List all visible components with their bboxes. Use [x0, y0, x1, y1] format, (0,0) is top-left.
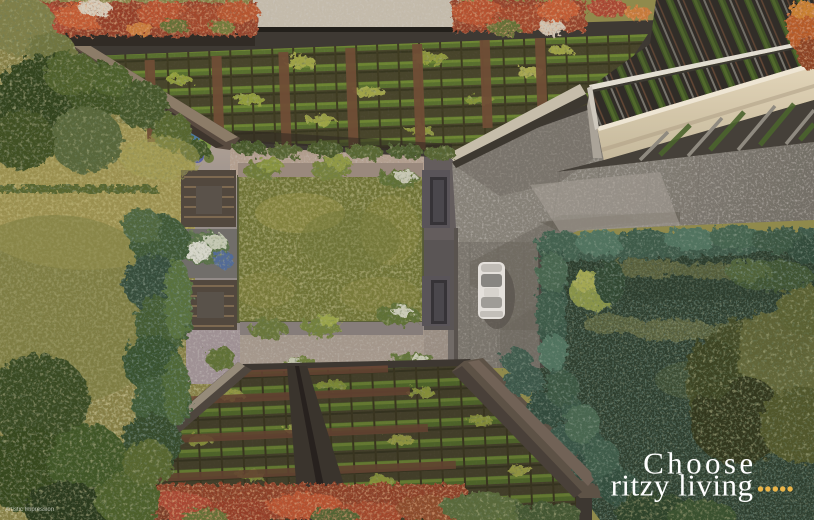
svg-text:Artistic Impression: Artistic Impression [5, 507, 54, 513]
svg-text:ritzy living: ritzy living [611, 468, 754, 503]
